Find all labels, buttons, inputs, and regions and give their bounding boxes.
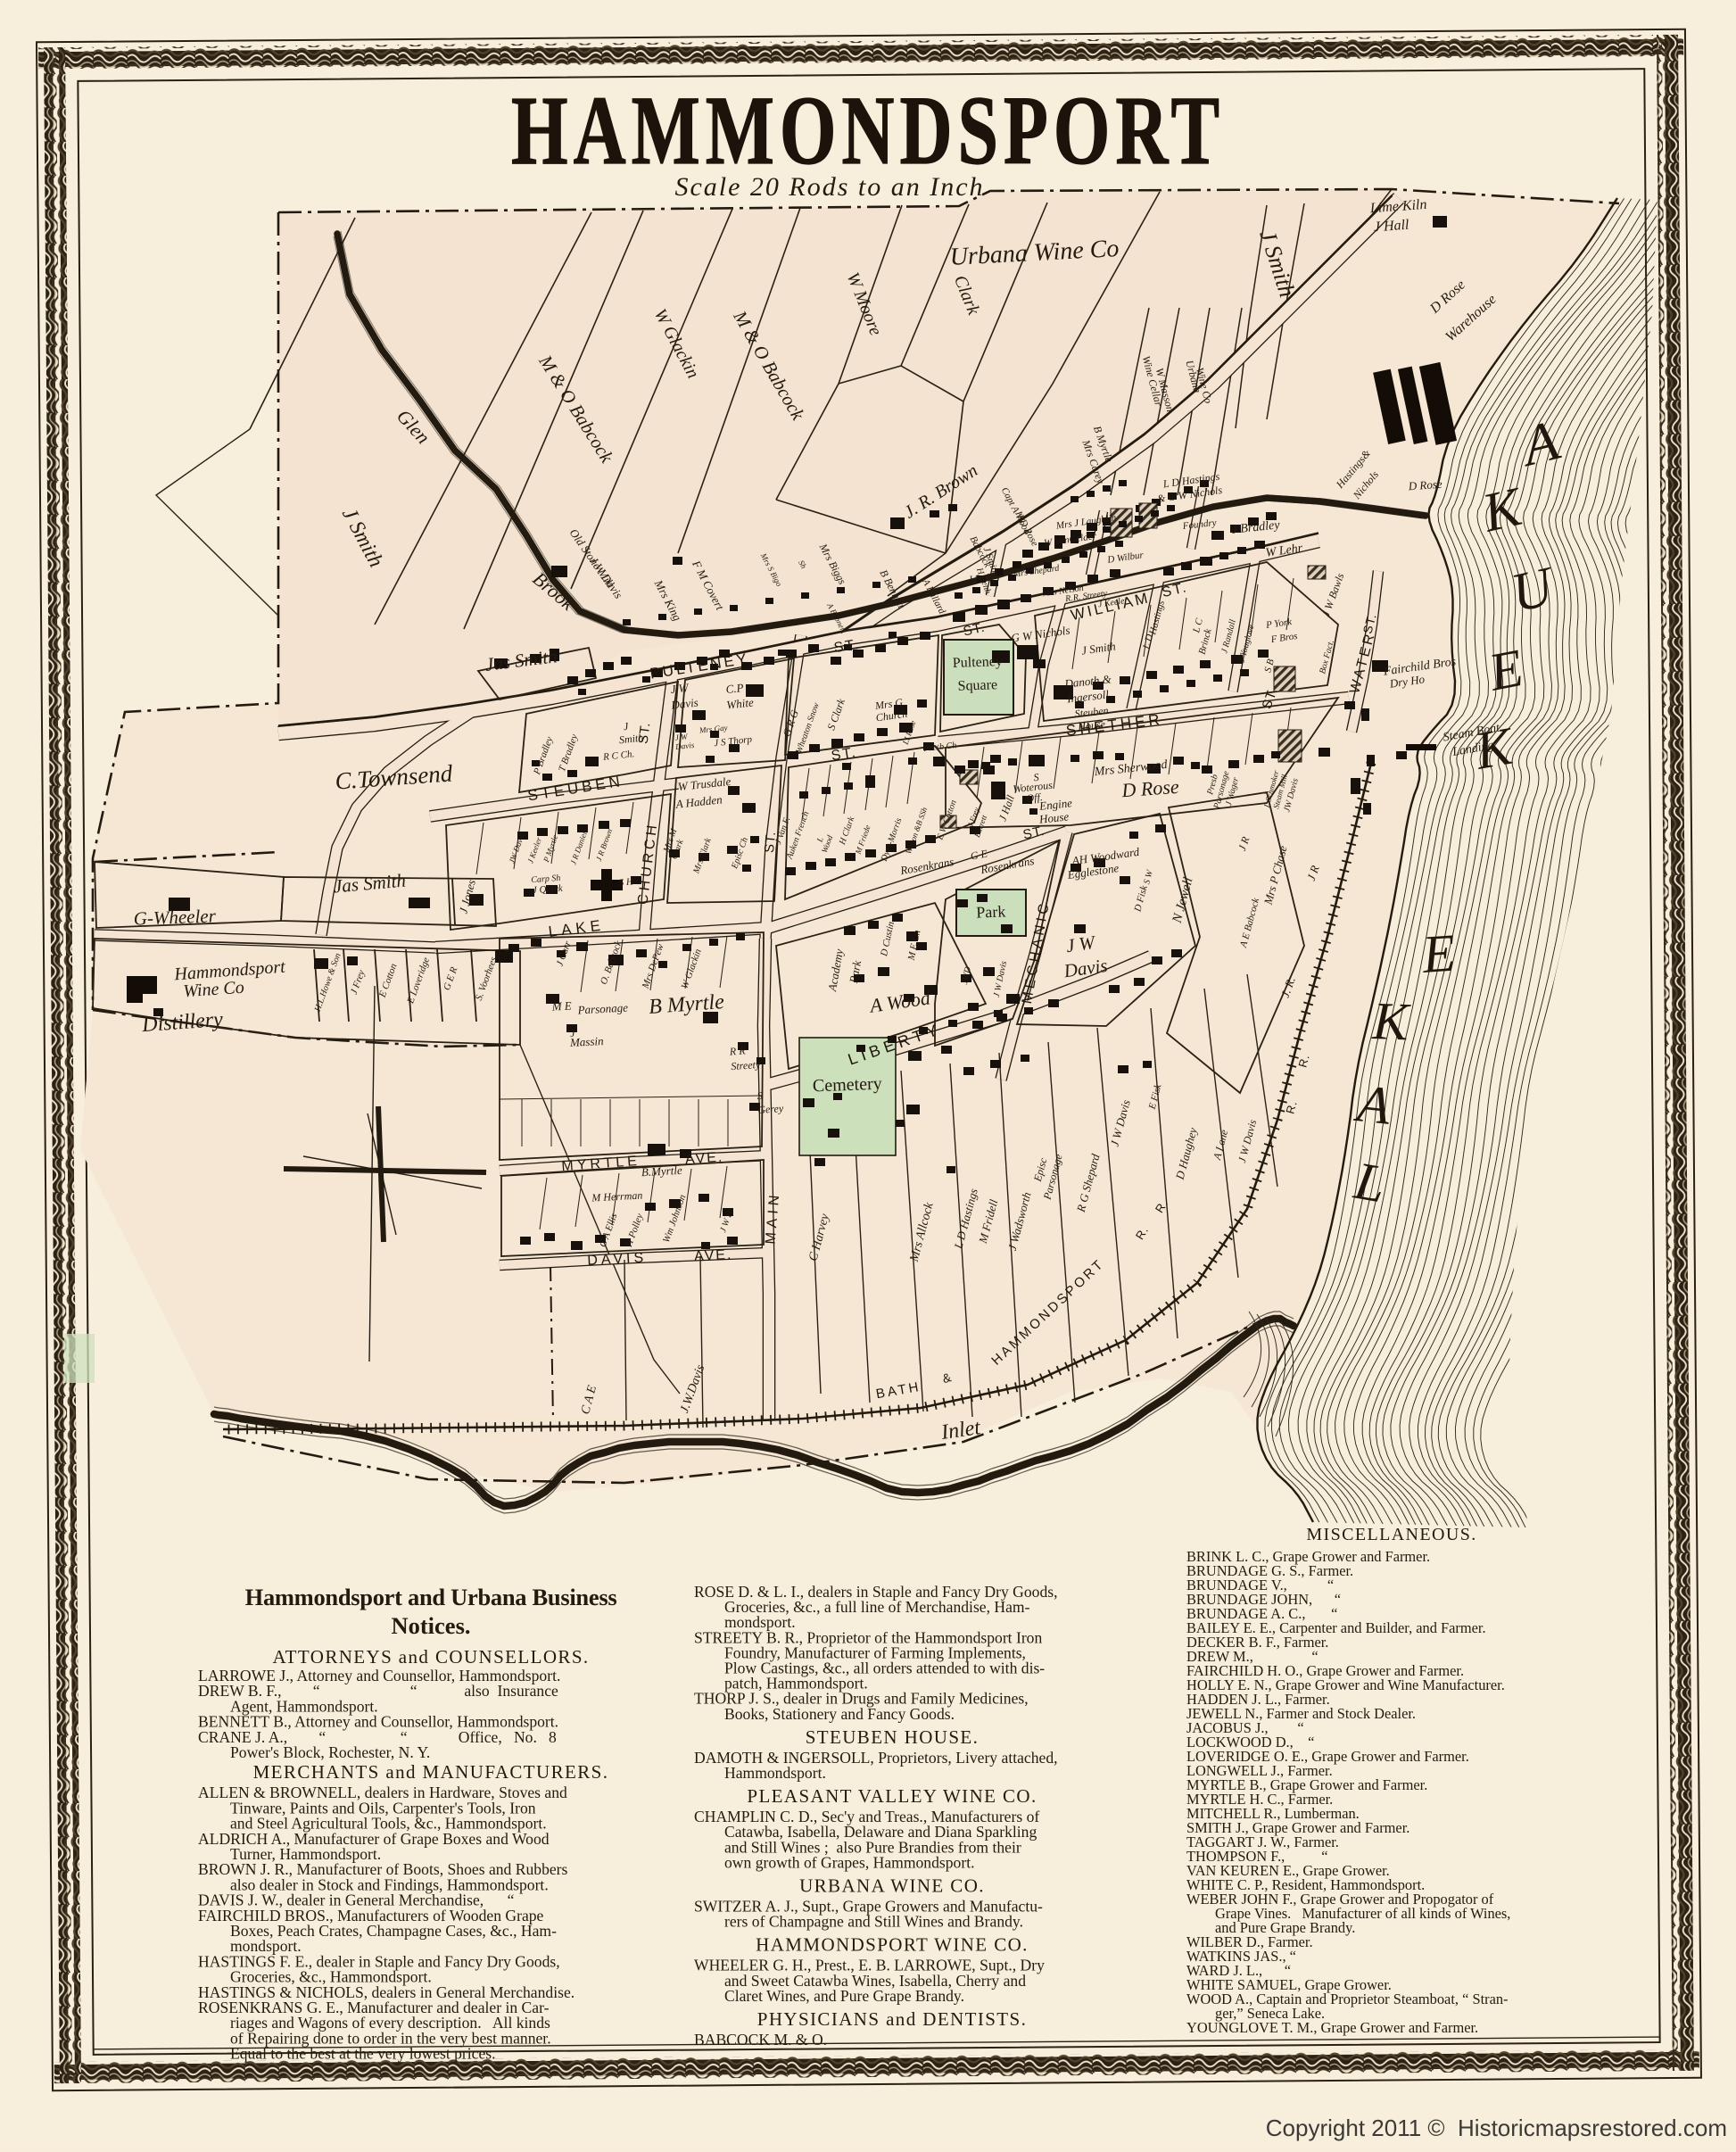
- svg-text:J Hall: J Hall: [1373, 218, 1409, 236]
- svg-text:White: White: [726, 695, 755, 711]
- svg-text:rers of Champagne and Still Wi: rers of Champagne and Still Wines and Br…: [724, 1913, 1023, 1931]
- svg-text:Equal to the best at the very: Equal to the best at the very lowest pri…: [230, 2045, 496, 2063]
- svg-text:AVE.: AVE.: [685, 1150, 724, 1168]
- svg-text:D Rose: D Rose: [1407, 477, 1443, 493]
- svg-text:YOUNGLOVE T. M., Grape Grower: YOUNGLOVE T. M., Grape Grower and Farmer…: [1186, 2019, 1478, 2036]
- svg-text:Claret Wines, and Pure Grape B: Claret Wines, and Pure Grape Brandy.: [724, 1987, 964, 2005]
- svg-text:PLEASANT VALLEY WINE CO.: PLEASANT VALLEY WINE CO.: [747, 1785, 1037, 1807]
- svg-text:R R: R R: [728, 1044, 746, 1057]
- svg-text:Books, Stationery and Fancy Go: Books, Stationery and Fancy Goods.: [724, 1705, 955, 1723]
- svg-text:B.Myrtle: B.Myrtle: [641, 1163, 682, 1179]
- svg-text:Square: Square: [957, 677, 997, 694]
- svg-text:Parsonage: Parsonage: [576, 1001, 628, 1017]
- svg-text:AVE.: AVE.: [694, 1247, 733, 1264]
- svg-text:Scale 20 Rods to an Inch: Scale 20 Rods to an Inch: [674, 172, 984, 202]
- svg-text:Notices.: Notices.: [391, 1612, 470, 1639]
- svg-text:Pulteney: Pulteney: [953, 654, 1004, 671]
- svg-text:Hammondsport and Urbana Busine: Hammondsport and Urbana Business: [245, 1584, 617, 1610]
- svg-text:Massin: Massin: [569, 1034, 604, 1049]
- svg-text:G-Wheeler: G-Wheeler: [133, 905, 217, 929]
- svg-text:own growth of Grapes, Hammonds: own growth of Grapes, Hammondsport.: [724, 1853, 974, 1871]
- svg-text:MISCELLANEOUS.: MISCELLANEOUS.: [1306, 1525, 1476, 1544]
- svg-text:URBANA WINE CO.: URBANA WINE CO.: [799, 1875, 985, 1897]
- svg-text:J W: J W: [670, 681, 690, 696]
- svg-text:Park: Park: [976, 902, 1006, 921]
- svg-text:Hammondsport.: Hammondsport.: [724, 1764, 826, 1782]
- svg-text:Gerey: Gerey: [757, 1102, 784, 1116]
- svg-text:Power's Block, Rochester, N. Y: Power's Block, Rochester, N. Y.: [230, 1743, 430, 1761]
- svg-text:K: K: [1371, 991, 1412, 1051]
- svg-text:M E: M E: [550, 998, 572, 1013]
- svg-text:DAVIS: DAVIS: [587, 1250, 648, 1268]
- svg-text:D Rose: D Rose: [1120, 775, 1180, 802]
- svg-text:MERCHANTS and MANUFACTURERS.: MERCHANTS and MANUFACTURERS.: [253, 1761, 609, 1783]
- svg-text:C.P: C.P: [725, 681, 744, 696]
- svg-text:ATTORNEYS and COUNSELLORS.: ATTORNEYS and COUNSELLORS.: [272, 1646, 589, 1668]
- svg-text:Smith: Smith: [618, 732, 644, 747]
- svg-text:PHYSICIANS and DENTISTS.: PHYSICIANS and DENTISTS.: [757, 2008, 1028, 2030]
- svg-text:BABCOCK M. & O.: BABCOCK M. & O.: [694, 2031, 827, 2049]
- svg-text:STEUBEN HOUSE.: STEUBEN HOUSE.: [806, 1726, 980, 1748]
- svg-text:Streety: Streety: [731, 1058, 761, 1072]
- svg-text:Copyright 2011 © Historicmaps: Copyright 2011 © Historicmapsrestored.co…: [1266, 2115, 1727, 2141]
- svg-text:Cemetery: Cemetery: [813, 1074, 882, 1097]
- svg-text:HAMMONDSPORT WINE CO.: HAMMONDSPORT WINE CO.: [756, 1934, 1029, 1956]
- svg-text:J Quick: J Quick: [532, 883, 564, 896]
- svg-text:HAMMONDSPORT: HAMMONDSPORT: [511, 76, 1225, 185]
- svg-text:S H: S H: [618, 876, 634, 888]
- svg-text:E: E: [1419, 923, 1457, 984]
- svg-text:J W: J W: [1064, 931, 1098, 957]
- svg-text:S: S: [756, 1089, 763, 1102]
